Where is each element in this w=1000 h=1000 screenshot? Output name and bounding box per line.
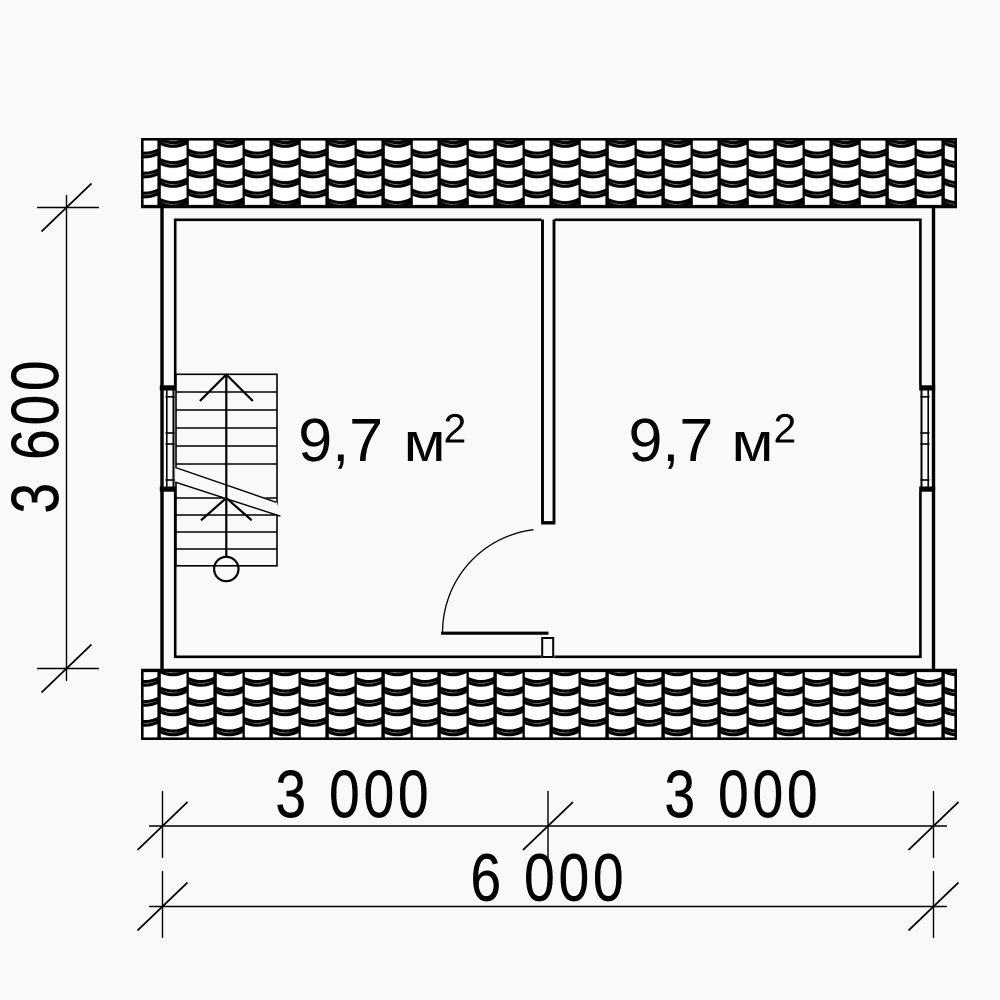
svg-text:м: м: [404, 412, 446, 473]
svg-text:м: м: [732, 412, 774, 473]
svg-text:9,7: 9,7: [298, 406, 383, 474]
svg-text:3 000: 3 000: [665, 757, 822, 832]
svg-text:2: 2: [774, 406, 797, 452]
svg-text:2: 2: [444, 406, 467, 452]
svg-text:9,7: 9,7: [629, 406, 714, 474]
svg-text:3 600: 3 600: [0, 357, 73, 514]
svg-text:3 000: 3 000: [276, 757, 433, 832]
svg-text:6 000: 6 000: [471, 841, 628, 916]
